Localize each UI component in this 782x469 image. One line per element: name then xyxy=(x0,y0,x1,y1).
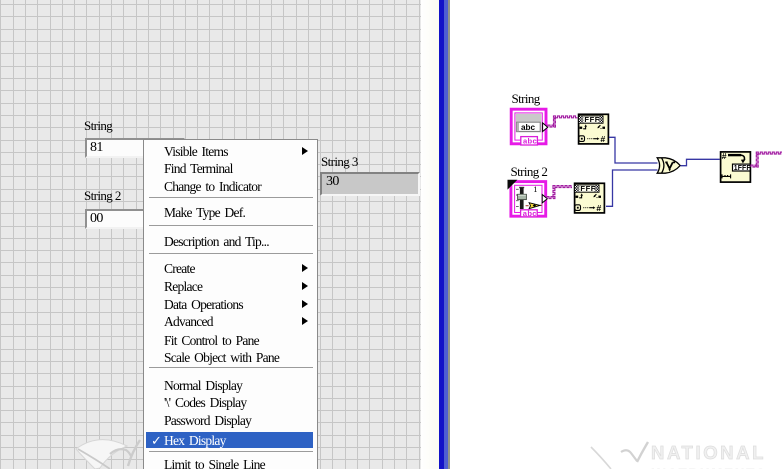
svg-text:NATIONAL: NATIONAL xyxy=(651,442,766,463)
svg-text:abc: abc xyxy=(523,209,537,218)
svg-text:1FFF: 1FFF xyxy=(734,165,751,172)
svg-text:String: String xyxy=(512,91,541,106)
svg-text:#: # xyxy=(600,134,605,144)
svg-text:FFF: FFF xyxy=(584,115,600,124)
svg-text:abc: abc xyxy=(523,137,537,146)
svg-text:abc: abc xyxy=(521,123,536,132)
svg-text:String 2: String 2 xyxy=(511,164,548,179)
svg-text:#: # xyxy=(722,151,727,161)
svg-text:1: 1 xyxy=(533,184,537,194)
